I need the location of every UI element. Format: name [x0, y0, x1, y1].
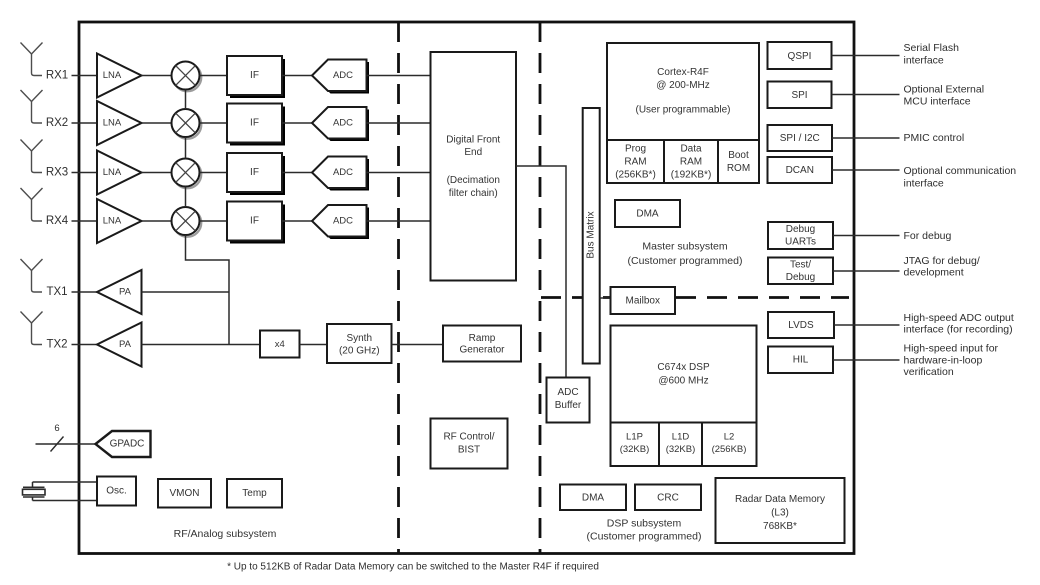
svg-text:interface: interface: [904, 178, 944, 190]
svg-text:VMON: VMON: [170, 488, 200, 499]
svg-text:C674x DSP: C674x DSP: [657, 362, 710, 373]
svg-text:Mailbox: Mailbox: [626, 296, 660, 307]
svg-text:LNA: LNA: [103, 118, 122, 129]
svg-text:L2: L2: [724, 432, 735, 443]
svg-text:Test/: Test/: [790, 260, 811, 271]
svg-text:RX4: RX4: [46, 215, 69, 227]
svg-text:Ramp: Ramp: [469, 333, 496, 344]
svg-text:Debug: Debug: [786, 272, 815, 283]
svg-text:High-speed ADC output: High-speed ADC output: [904, 312, 1014, 324]
svg-text:Digital Front: Digital Front: [446, 135, 500, 146]
svg-text:(32KB): (32KB): [620, 444, 650, 455]
svg-text:RX2: RX2: [46, 117, 68, 129]
svg-text:RX3: RX3: [46, 167, 68, 179]
svg-text:6: 6: [54, 423, 59, 434]
svg-text:DSP subsystem: DSP subsystem: [607, 518, 682, 530]
svg-text:High-speed input for: High-speed input for: [904, 343, 999, 355]
svg-text:Synth: Synth: [346, 333, 372, 344]
svg-text:ADC: ADC: [333, 216, 353, 227]
svg-text:JTAG for debug/: JTAG for debug/: [904, 255, 980, 267]
svg-text:QSPI: QSPI: [788, 51, 812, 62]
svg-text:Boot: Boot: [728, 150, 749, 161]
svg-text:SPI / I2C: SPI / I2C: [780, 133, 820, 144]
svg-text:For debug: For debug: [904, 230, 952, 242]
svg-text:(192KB*): (192KB*): [671, 170, 712, 181]
svg-text:Prog: Prog: [625, 144, 646, 155]
svg-text:GPADC: GPADC: [110, 439, 145, 450]
svg-text:CRC: CRC: [657, 493, 679, 504]
svg-text:LNA: LNA: [103, 70, 122, 81]
svg-text:(256KB): (256KB): [712, 444, 747, 455]
svg-text:Optional External: Optional External: [904, 84, 985, 96]
svg-text:IF: IF: [250, 216, 259, 227]
svg-text:(256KB*): (256KB*): [615, 170, 656, 181]
svg-text:HIL: HIL: [793, 355, 809, 366]
svg-text:ADC: ADC: [333, 167, 353, 178]
svg-text:RAM: RAM: [680, 157, 702, 168]
svg-text:PMIC control: PMIC control: [904, 132, 965, 144]
svg-text:(32KB): (32KB): [666, 444, 696, 455]
svg-text:RF/Analog subsystem: RF/Analog subsystem: [174, 528, 277, 540]
svg-text:ADC: ADC: [333, 70, 353, 81]
svg-text:UARTs: UARTs: [785, 237, 816, 248]
svg-text:MCU interface: MCU interface: [904, 96, 971, 108]
svg-text:DMA: DMA: [636, 209, 659, 220]
svg-text:TX1: TX1: [46, 286, 67, 298]
svg-text:RAM: RAM: [624, 157, 646, 168]
svg-text:Osc.: Osc.: [106, 486, 127, 497]
svg-text:DMA: DMA: [582, 493, 605, 504]
svg-text:RX1: RX1: [46, 70, 68, 82]
svg-text:L1D: L1D: [672, 432, 690, 443]
svg-text:DCAN: DCAN: [786, 165, 814, 176]
svg-text:TX2: TX2: [46, 339, 67, 351]
svg-text:End: End: [464, 147, 482, 158]
svg-text:ADC: ADC: [333, 118, 353, 129]
svg-text:Generator: Generator: [459, 345, 505, 356]
svg-text:ROM: ROM: [727, 163, 750, 174]
svg-text:filter chain): filter chain): [449, 188, 498, 199]
svg-text:@ 200-MHz: @ 200-MHz: [656, 80, 710, 91]
svg-text:Temp: Temp: [242, 488, 267, 499]
svg-text:LVDS: LVDS: [788, 320, 814, 331]
svg-text:Bus Matrix: Bus Matrix: [586, 211, 597, 258]
svg-text:SPI: SPI: [791, 90, 807, 101]
svg-text:development: development: [904, 267, 964, 279]
svg-text:Radar Data Memory: Radar Data Memory: [735, 494, 825, 505]
svg-text:(Customer programmed): (Customer programmed): [587, 531, 702, 543]
svg-text:LNA: LNA: [103, 167, 122, 178]
svg-text:* Up to 512KB of Radar Data Me: * Up to 512KB of Radar Data Memory can b…: [227, 562, 599, 573]
svg-text:ADC: ADC: [557, 387, 578, 398]
svg-text:IF: IF: [250, 118, 259, 129]
svg-text:IF: IF: [250, 70, 259, 81]
svg-text:Data: Data: [680, 144, 702, 155]
svg-text:interface (for recording): interface (for recording): [904, 324, 1013, 336]
svg-text:RF Control/: RF Control/: [443, 432, 494, 443]
svg-text:PA: PA: [119, 339, 132, 350]
svg-text:(L3): (L3): [771, 508, 789, 519]
svg-text:hardware-in-loop: hardware-in-loop: [904, 355, 983, 367]
svg-text:(User programmable): (User programmable): [635, 105, 730, 116]
svg-text:(Customer programmed): (Customer programmed): [628, 255, 743, 267]
svg-text:PA: PA: [119, 287, 132, 298]
svg-text:BIST: BIST: [458, 445, 480, 456]
svg-text:Buffer: Buffer: [555, 400, 582, 411]
svg-text:768KB*: 768KB*: [763, 521, 797, 532]
svg-text:Serial Flash: Serial Flash: [904, 42, 960, 54]
svg-text:Master subsystem: Master subsystem: [642, 241, 727, 253]
svg-text:(Decimation: (Decimation: [447, 175, 500, 186]
svg-text:IF: IF: [250, 167, 259, 178]
svg-text:verification: verification: [904, 366, 954, 378]
svg-text:@600 MHz: @600 MHz: [658, 376, 708, 387]
svg-text:x4: x4: [275, 339, 285, 350]
svg-text:LNA: LNA: [103, 216, 122, 227]
svg-text:Debug: Debug: [786, 224, 815, 235]
svg-text:Optional communication: Optional communication: [904, 165, 1017, 177]
svg-text:Cortex-R4F: Cortex-R4F: [657, 67, 709, 78]
svg-text:L1P: L1P: [626, 432, 643, 443]
svg-text:interface: interface: [904, 55, 944, 67]
svg-text:(20 GHz): (20 GHz): [339, 346, 380, 357]
